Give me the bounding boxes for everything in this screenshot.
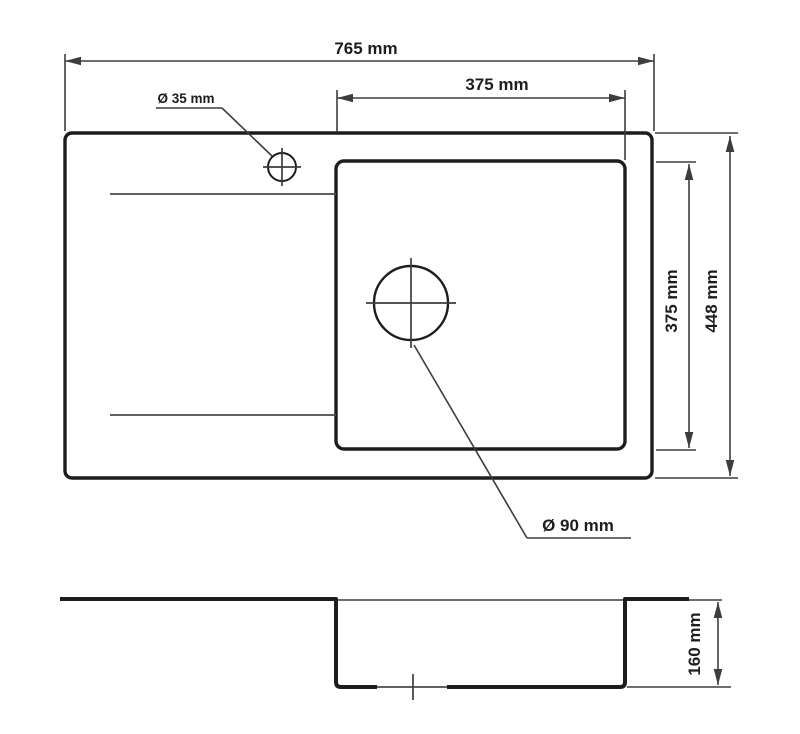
bowl-depth-label: 160 mm bbox=[685, 612, 704, 675]
section-view: 160 mm bbox=[60, 599, 731, 700]
top-view: Ø 35 mm Ø 90 mm 765 mm 375 mm 375 m bbox=[65, 39, 738, 538]
diagram-canvas: Ø 35 mm Ø 90 mm 765 mm 375 mm 375 m bbox=[0, 0, 800, 734]
drain-leader-line bbox=[414, 345, 527, 538]
sink-outline bbox=[65, 133, 652, 478]
faucet-callout: Ø 35 mm bbox=[156, 91, 272, 156]
drain-callout: Ø 90 mm bbox=[414, 345, 631, 538]
overall-depth-label: 448 mm bbox=[702, 269, 721, 332]
drain-diameter-label: Ø 90 mm bbox=[542, 516, 614, 535]
dim-bowl-width: 375 mm bbox=[337, 75, 625, 160]
dim-bowl-height: 375 mm bbox=[656, 162, 696, 450]
faucet-diameter-label: Ø 35 mm bbox=[157, 91, 214, 106]
bowl-width-label: 375 mm bbox=[465, 75, 528, 94]
technical-drawing: Ø 35 mm Ø 90 mm 765 mm 375 mm 375 m bbox=[0, 0, 800, 734]
section-profile-right bbox=[447, 599, 689, 687]
dim-bowl-depth: 160 mm bbox=[627, 602, 731, 687]
section-profile-left bbox=[60, 599, 377, 687]
bowl-outline bbox=[336, 161, 625, 449]
drain-hole bbox=[366, 258, 456, 348]
dim-overall-width: 765 mm bbox=[65, 39, 654, 131]
overall-width-label: 765 mm bbox=[334, 39, 397, 58]
bowl-height-label: 375 mm bbox=[662, 269, 681, 332]
